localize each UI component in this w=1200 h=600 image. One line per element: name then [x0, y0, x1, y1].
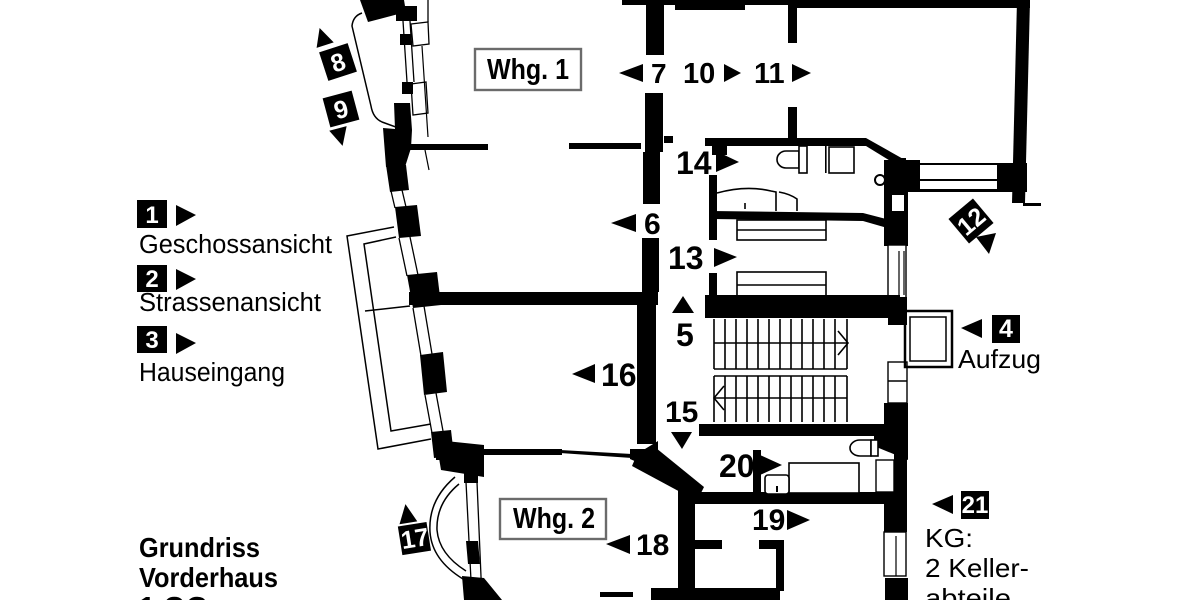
- svg-text:7: 7: [651, 58, 667, 89]
- svg-text:17: 17: [399, 523, 431, 555]
- svg-text:6: 6: [644, 208, 661, 241]
- svg-text:Grundriss: Grundriss: [139, 532, 260, 563]
- svg-text:18: 18: [636, 529, 669, 562]
- svg-text:Hauseingang: Hauseingang: [139, 359, 285, 387]
- svg-text:14: 14: [676, 145, 712, 181]
- svg-text:Whg. 1: Whg. 1: [487, 54, 569, 86]
- svg-text:11: 11: [754, 58, 785, 90]
- svg-text:Vorderhaus: Vorderhaus: [139, 562, 278, 593]
- svg-text:2 Keller-: 2 Keller-: [925, 553, 1029, 583]
- svg-text:KG:: KG:: [925, 523, 973, 553]
- svg-text:3: 3: [145, 327, 158, 354]
- svg-text:21: 21: [962, 492, 989, 519]
- svg-text:15: 15: [665, 396, 698, 429]
- svg-text:16: 16: [601, 357, 637, 393]
- svg-text:Whg. 2: Whg. 2: [513, 503, 595, 535]
- svg-text:20: 20: [719, 448, 755, 484]
- svg-text:10: 10: [683, 58, 715, 90]
- svg-text:Aufzug: Aufzug: [958, 344, 1041, 374]
- svg-text:13: 13: [668, 240, 704, 276]
- svg-text:1: 1: [145, 202, 158, 229]
- svg-text:abteile: abteile: [925, 583, 1011, 600]
- svg-text:1.OG: 1.OG: [139, 592, 208, 600]
- svg-text:Geschossansicht: Geschossansicht: [139, 231, 332, 259]
- svg-text:Strassenansicht: Strassenansicht: [139, 289, 321, 317]
- svg-text:5: 5: [676, 317, 694, 353]
- svg-text:19: 19: [752, 504, 785, 537]
- svg-text:4: 4: [999, 315, 1013, 343]
